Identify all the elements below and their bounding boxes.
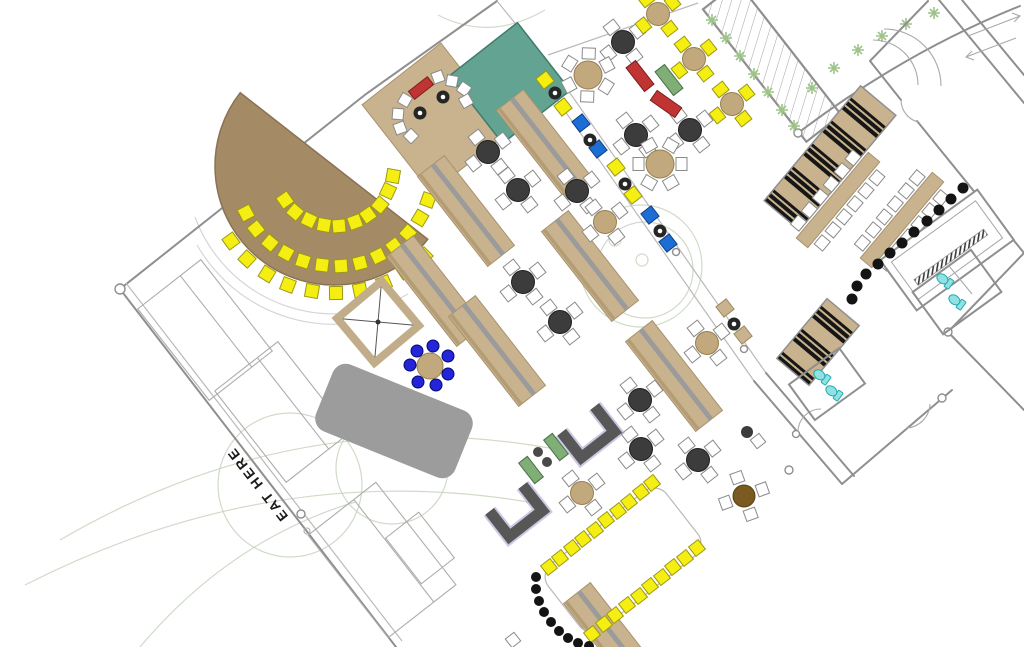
brown-round-table: [733, 485, 755, 507]
lounge-area: [362, 23, 570, 193]
chair: [505, 632, 520, 647]
bar-counter: [880, 190, 1014, 311]
red-bench: [650, 90, 681, 117]
umbrella-table: [337, 281, 419, 363]
blue-stool-table: [404, 340, 454, 391]
small-table: [533, 447, 543, 457]
small-table: [542, 457, 552, 467]
red-bench: [626, 60, 654, 91]
wall-post: [115, 284, 125, 294]
chair: [750, 433, 765, 448]
floor-plan-drawing: EAT HERE: [0, 0, 1024, 647]
green-bench: [519, 456, 544, 483]
site-plan: EAT HERE: [0, 0, 1024, 647]
small-table: [741, 426, 753, 438]
pergola: [703, 0, 841, 142]
